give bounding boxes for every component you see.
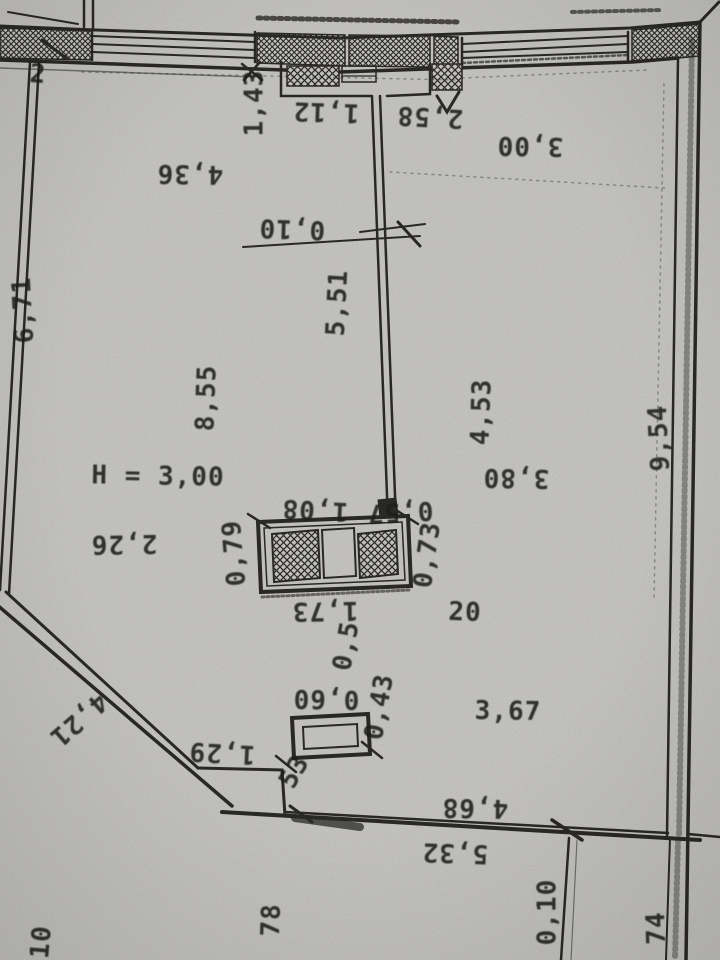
blueprint-photo: 2 1,43 1,12 2,58 4,36 3,00 0,10 5,51 6,7…	[0, 0, 720, 960]
floor-plan-drawing: 2 1,43 1,12 2,58 4,36 3,00 0,10 5,51 6,7…	[0, 0, 720, 960]
photo-vignette-overlay	[0, 0, 720, 960]
